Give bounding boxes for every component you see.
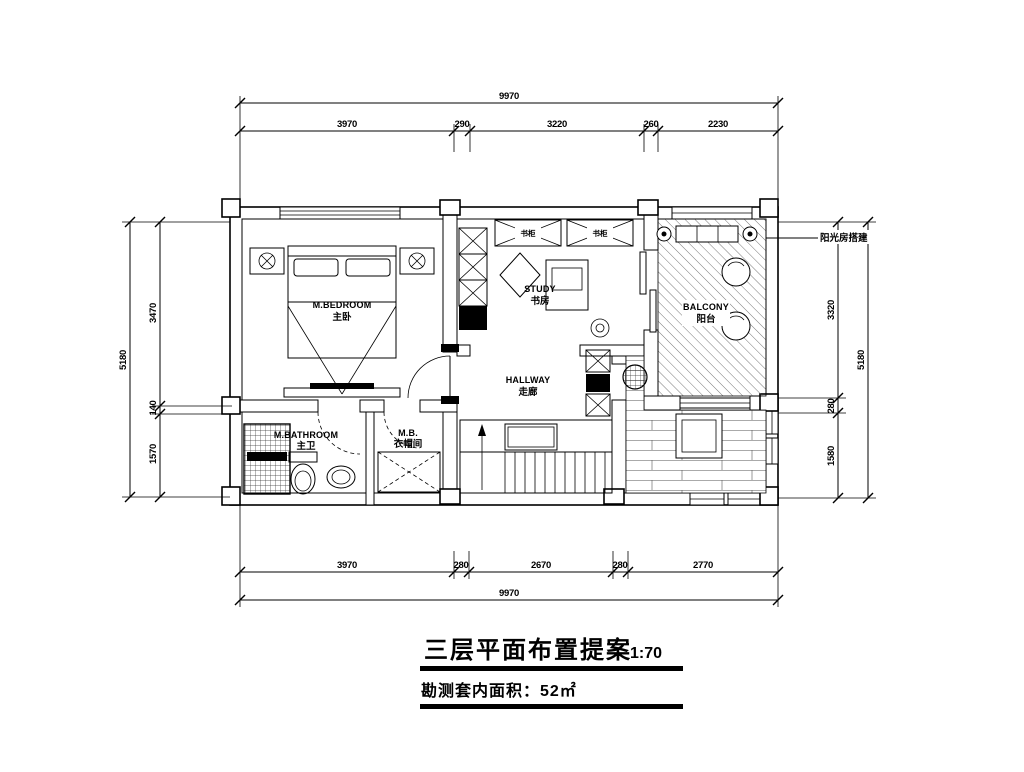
dimensions-right: 3320 280 1580 5180 — [778, 217, 876, 503]
bathroom-label-cn: 主卫 — [296, 440, 316, 452]
bedroom-label-cn: 主卧 — [332, 311, 352, 323]
wall-bath-closet — [366, 412, 374, 505]
balcony-console — [676, 226, 738, 242]
wall-bed-bath-a — [230, 400, 318, 412]
hallway-label-cn: 走廊 — [517, 386, 538, 398]
plan-title: 三层平面布置提案 — [424, 636, 632, 664]
wall-bedroom-east — [443, 207, 457, 352]
wall-bed-bath-b — [360, 400, 384, 412]
wall-balcony-west-b — [644, 330, 658, 396]
dim-bottom-total: 9970 — [499, 588, 519, 599]
tv — [310, 383, 374, 389]
title-rule-1 — [420, 666, 683, 671]
dim-bot-seg0: 3970 — [337, 560, 357, 571]
dim-top-total: 9970 — [499, 91, 519, 102]
bookcase-label-block — [459, 306, 487, 330]
dim-top-seg0: 3970 — [337, 119, 357, 130]
dim-bot-seg4: 2770 — [693, 560, 713, 571]
dimensions-top: 9970 3970 290 3220 260 2230 — [235, 91, 783, 207]
dim-left-seg0: 3470 — [148, 303, 159, 323]
floorplan-drawing: M.BEDROOM 主卧 M.BATHROOM 主卫 M.B. 衣帽间 — [0, 0, 1024, 772]
bookcase-right-label: 书柜 — [593, 228, 608, 238]
dim-right-seg0: 3320 — [826, 300, 837, 320]
dim-top-seg1: 290 — [455, 119, 470, 130]
dim-left-total: 5180 — [118, 350, 129, 370]
balcony: BALCONY 阳台 — [657, 219, 766, 396]
dim-bot-seg2: 2670 — [531, 560, 551, 571]
dim-top-seg4: 2230 — [708, 119, 728, 130]
sliding-door-panel-1 — [640, 252, 646, 294]
balcony-label-cn: 阳台 — [696, 313, 716, 325]
dim-left-seg2: 1570 — [148, 444, 159, 464]
wall-hall-east-b — [612, 400, 626, 493]
dim-bot-seg1: 280 — [454, 560, 469, 571]
wall-hall-east-a — [612, 356, 626, 364]
sliding-door-panel-2 — [650, 290, 656, 332]
plan-scale: 1:70 — [630, 645, 662, 662]
dim-left-seg1: 140 — [148, 401, 159, 416]
bedroom-label-en: M.BEDROOM — [313, 300, 372, 310]
terrace-table — [676, 414, 722, 458]
closet-label-cn: 衣帽间 — [394, 438, 423, 450]
planter — [623, 365, 647, 389]
balcony-label-en: BALCONY — [683, 302, 729, 312]
closet-label-en: M.B. — [398, 428, 418, 438]
shower-label-block — [247, 452, 287, 461]
dimensions-left: 5180 3470 140 1570 — [118, 217, 232, 502]
dim-right-seg1: 280 — [826, 399, 837, 414]
dim-right-seg2: 1580 — [826, 446, 837, 466]
bathroom-label-en: M.BATHROOM — [274, 430, 338, 440]
study-label-en: STUDY — [524, 284, 556, 294]
dim-right-total: 5180 — [856, 350, 867, 370]
bookcase-left-label: 书柜 — [521, 228, 536, 238]
dimensions-bottom: 3970 280 2670 280 2770 9970 — [235, 505, 783, 607]
title-block: 三层平面布置提案 1:70 勘测套内面积：52㎡ — [420, 636, 683, 709]
window-bedroom-north — [280, 207, 400, 219]
sunroom-note: 阳光房搭建 — [820, 232, 868, 244]
wall-balcony-terrace-a — [644, 396, 680, 410]
hallway-label-en: HALLWAY — [506, 375, 551, 385]
dim-top-seg3: 260 — [644, 119, 659, 130]
study-label-cn: 书房 — [530, 295, 549, 307]
sunroom-annotation: 阳光房搭建 — [766, 230, 880, 244]
floorplan-page: M.BEDROOM 主卧 M.BATHROOM 主卫 M.B. 衣帽间 — [0, 0, 1024, 772]
area-note: 勘测套内面积：52㎡ — [421, 681, 577, 700]
dim-bot-seg3: 280 — [613, 560, 628, 571]
title-rule-2 — [420, 704, 683, 709]
dim-top-seg2: 3220 — [547, 119, 567, 130]
door-jamb-1 — [441, 344, 459, 352]
hall-cabinet-label-block — [586, 374, 610, 392]
